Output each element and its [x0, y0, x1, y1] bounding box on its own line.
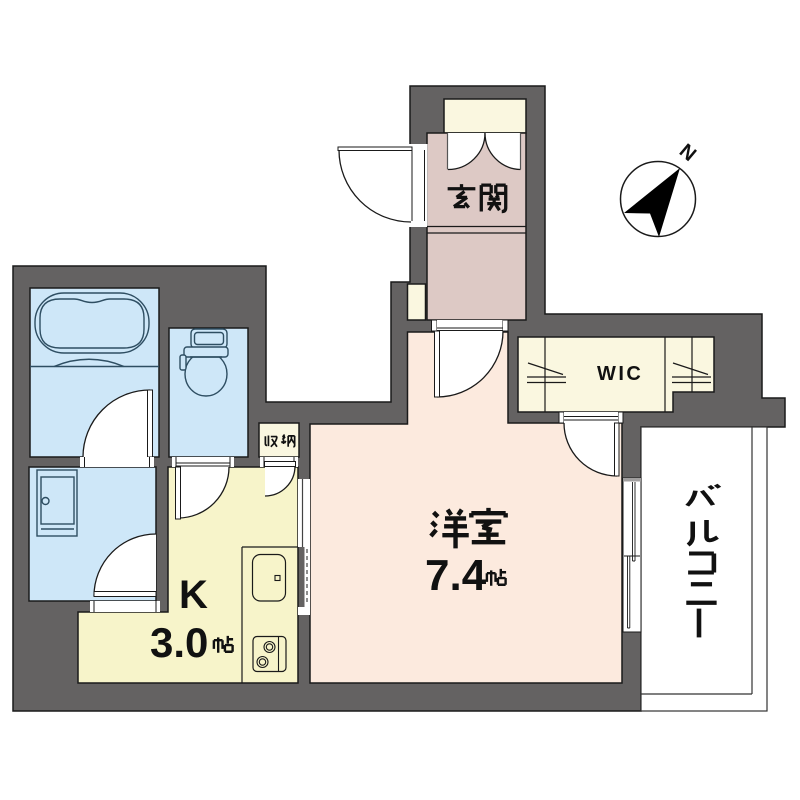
svg-text:K: K: [179, 573, 208, 617]
svg-text:N: N: [675, 140, 700, 166]
svg-text:WIC: WIC: [597, 363, 643, 385]
svg-text:3.0: 3.0: [150, 619, 208, 666]
svg-text:7.4: 7.4: [425, 551, 487, 600]
